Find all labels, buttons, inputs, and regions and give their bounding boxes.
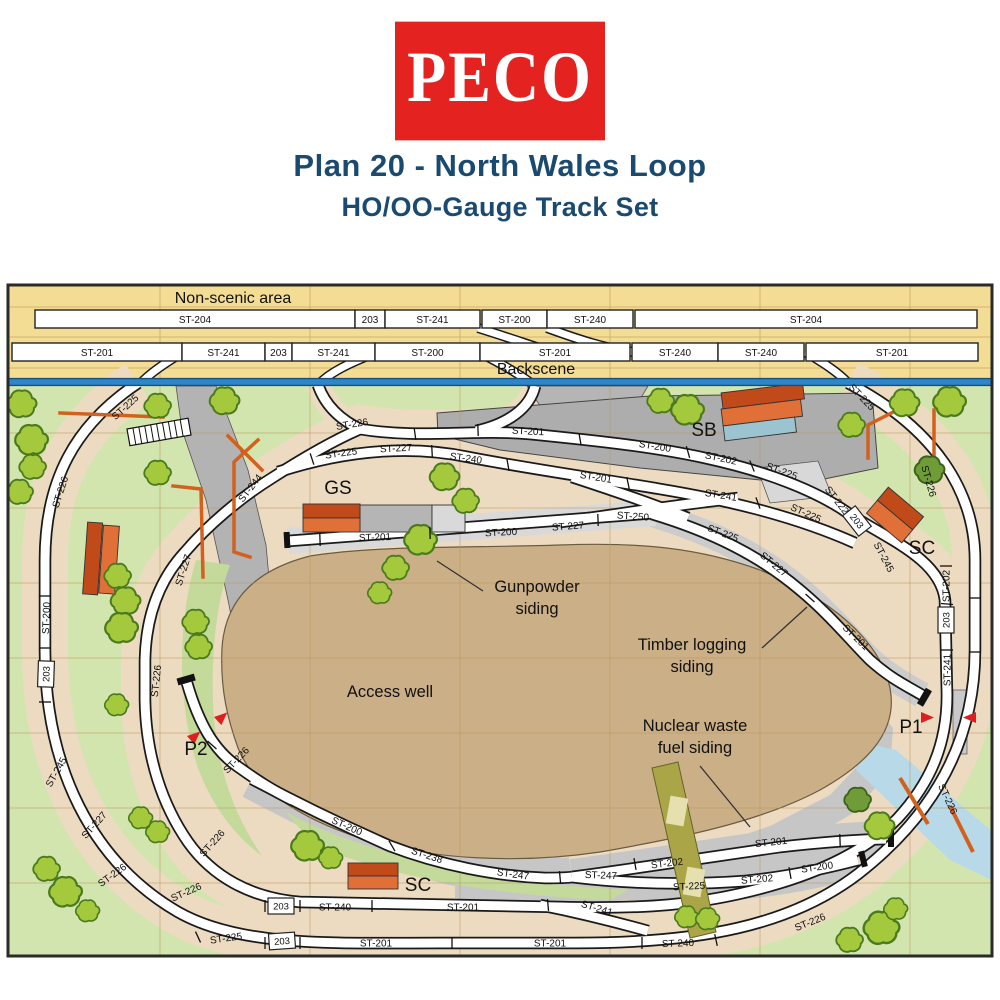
track-label: ST-247 <box>585 870 618 882</box>
track-joint <box>432 445 433 457</box>
track-label: 203 <box>274 936 291 948</box>
poi-label: SB <box>691 420 716 441</box>
poi-label: SC <box>405 875 431 896</box>
track-label: ST-202 <box>942 569 953 602</box>
track-segment-label: ST-241 <box>416 315 449 326</box>
page-subtitle: HO/OO-Gauge Track Set <box>0 192 1000 223</box>
station-building-sb <box>719 383 808 441</box>
note-label: fuel siding <box>658 739 732 757</box>
track-segment-label: ST-200 <box>411 348 444 359</box>
track-label: ST-200 <box>41 601 53 634</box>
track-label: ST-240 <box>319 903 352 914</box>
note-label: siding <box>670 658 713 676</box>
track-label: ST-200 <box>485 527 518 540</box>
track-label: ST-227 <box>380 443 413 456</box>
track-segment-label: ST-240 <box>745 348 778 359</box>
note-label: Timber logging <box>638 636 747 654</box>
track-segment-label: ST-201 <box>81 348 114 359</box>
track-label: 203 <box>41 666 53 682</box>
poi-label: P1 <box>899 717 922 738</box>
track-label: 203 <box>942 612 953 628</box>
track-label: ST-201 <box>360 939 393 950</box>
track-segment-label: ST-204 <box>790 315 823 326</box>
track-label: ST-240 <box>662 938 695 950</box>
track-label: ST-201 <box>534 939 567 950</box>
backscene-bar <box>8 378 992 386</box>
track-segment-label: ST-200 <box>498 315 531 326</box>
track-segment-label: ST-201 <box>539 348 572 359</box>
track-segment-label: ST-240 <box>659 348 692 359</box>
page: { "header": { "logo_text": "PECO", "titl… <box>0 0 1000 1000</box>
note-label: Nuclear waste <box>643 717 748 735</box>
track-label: ST-225 <box>673 881 706 894</box>
track-label: ST-201 <box>359 532 392 544</box>
track-segment-label: ST-201 <box>876 348 909 359</box>
header: PECO Plan 20 - North Wales Loop HO/OO-Ga… <box>0 0 1000 223</box>
note-label: Access well <box>347 683 433 701</box>
note-label: siding <box>515 600 558 618</box>
signal-cabin-bottom <box>348 863 398 889</box>
page-title: Plan 20 - North Wales Loop <box>0 148 1000 184</box>
logo-text: PECO <box>407 37 593 117</box>
track-label: ST-201 <box>512 426 545 439</box>
track-segment-label: ST-241 <box>317 348 350 359</box>
goods-shed-gs <box>303 504 465 532</box>
poi-label: P2 <box>184 739 207 760</box>
plan-board: ST-204203ST-241ST-200ST-240ST-204ST-201S… <box>6 285 1000 956</box>
non-scenic-banner: Non-scenic area <box>175 290 292 307</box>
poi-label: GS <box>324 478 351 499</box>
track-label: ST-241 <box>943 653 954 686</box>
track-segment-label: ST-240 <box>574 315 607 326</box>
peco-logo: PECO <box>395 22 605 141</box>
poi-label: SC <box>909 538 935 559</box>
track-label: 203 <box>273 902 289 913</box>
track-label: ST-227 <box>552 520 585 533</box>
track-segment-label: 203 <box>270 348 287 359</box>
track-label: ST-201 <box>447 903 480 914</box>
backscene-banner: Backscene <box>497 361 575 378</box>
track-segment-label: ST-204 <box>179 315 212 326</box>
track-segment-label: 203 <box>362 315 379 326</box>
note-label: Gunpowder <box>494 578 580 596</box>
buffer-stop <box>284 532 291 548</box>
track-label: ST-250 <box>616 510 649 523</box>
track-segment-label: ST-241 <box>207 348 240 359</box>
